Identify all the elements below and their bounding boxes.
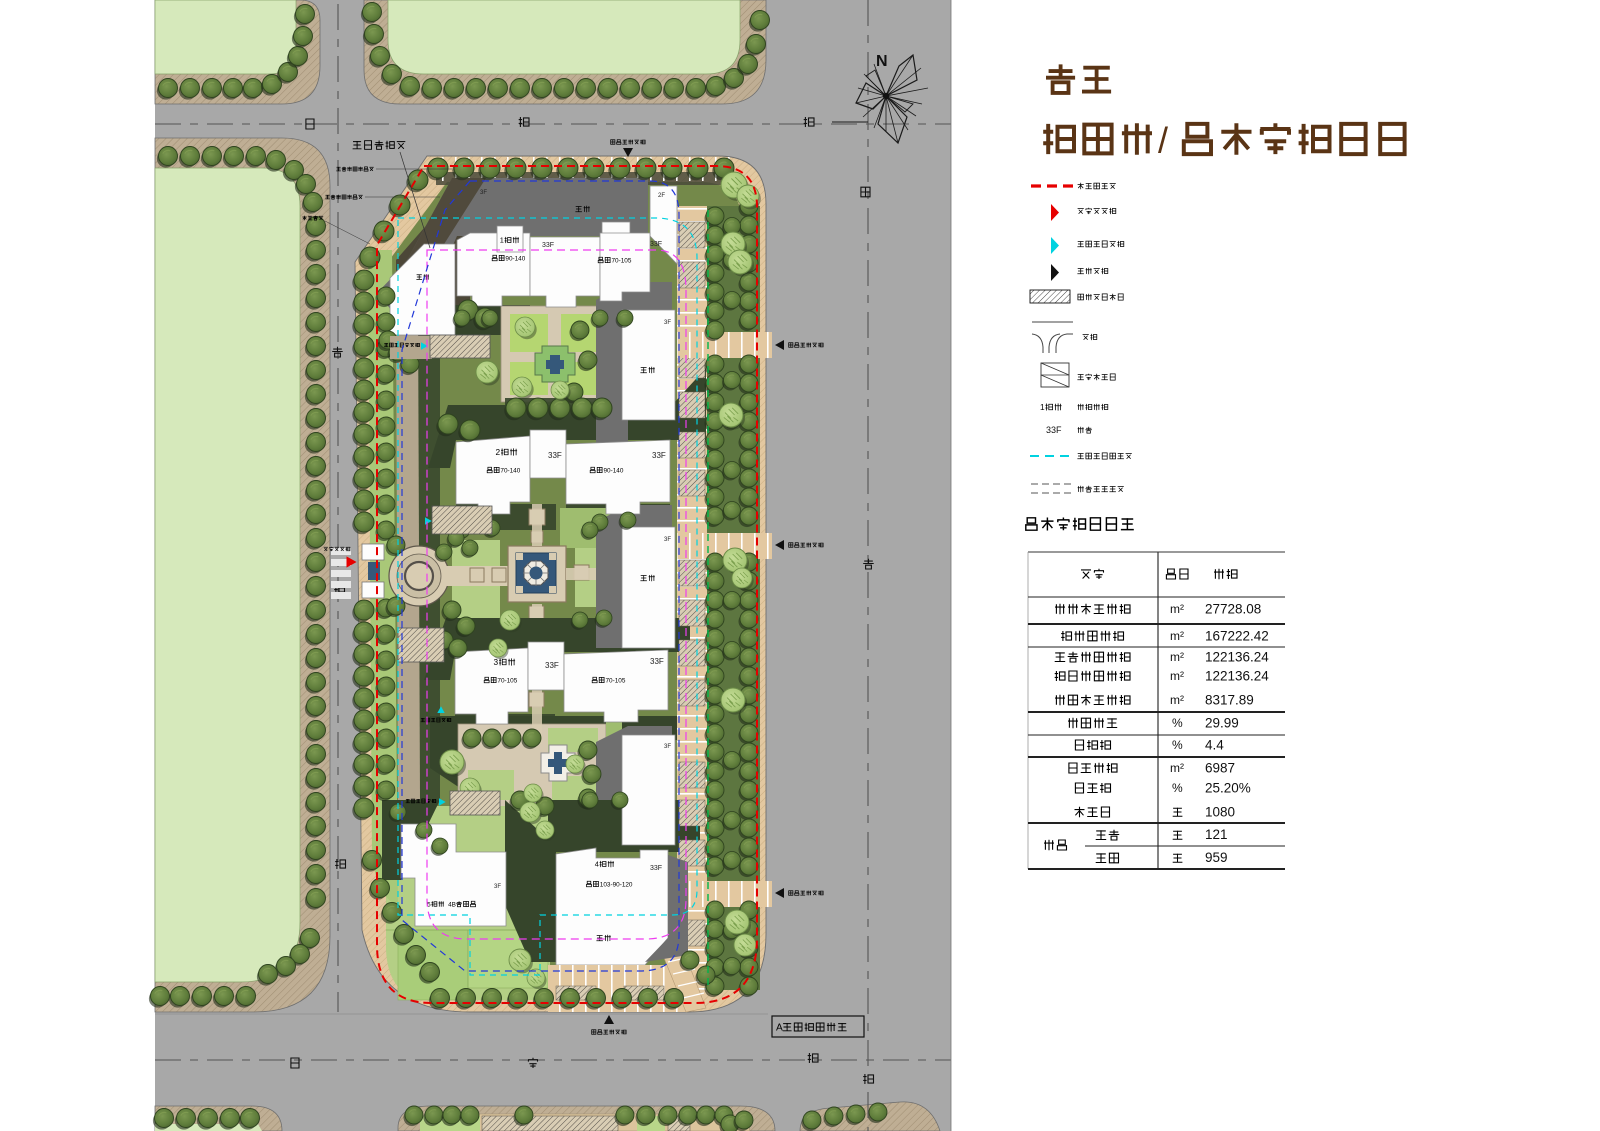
svg-text:m²: m² bbox=[1170, 650, 1184, 664]
svg-text:122136.24: 122136.24 bbox=[1205, 650, 1269, 665]
svg-text:959: 959 bbox=[1205, 850, 1228, 865]
svg-text:m²: m² bbox=[1170, 629, 1184, 643]
svg-text:4.4: 4.4 bbox=[1205, 738, 1224, 753]
svg-text:4: 4 bbox=[595, 860, 599, 869]
svg-text:%: % bbox=[1172, 781, 1183, 795]
svg-text:90-140: 90-140 bbox=[505, 255, 525, 262]
svg-text:3F: 3F bbox=[664, 537, 671, 543]
svg-text:m²: m² bbox=[1170, 669, 1184, 683]
svg-text:4B: 4B bbox=[448, 901, 456, 908]
svg-text:90-140: 90-140 bbox=[604, 467, 624, 474]
svg-text:70-140: 70-140 bbox=[500, 467, 520, 474]
svg-text:3F: 3F bbox=[494, 884, 501, 890]
svg-text:33F: 33F bbox=[650, 657, 664, 666]
svg-text:33F: 33F bbox=[548, 451, 562, 460]
svg-text:70-105: 70-105 bbox=[612, 257, 632, 264]
svg-text:33F: 33F bbox=[650, 241, 662, 248]
svg-text:70-105: 70-105 bbox=[606, 677, 626, 684]
svg-text:27728.08: 27728.08 bbox=[1205, 602, 1261, 617]
svg-text:m²: m² bbox=[1170, 693, 1184, 707]
svg-text:6987: 6987 bbox=[1205, 761, 1235, 776]
svg-text:3F: 3F bbox=[480, 190, 487, 196]
svg-text:167222.42: 167222.42 bbox=[1205, 629, 1269, 644]
svg-text:33F: 33F bbox=[650, 865, 662, 872]
svg-text:33F: 33F bbox=[1046, 425, 1062, 435]
svg-text:1080: 1080 bbox=[1205, 805, 1235, 820]
svg-text:29.99: 29.99 bbox=[1205, 716, 1239, 731]
svg-text:33F: 33F bbox=[652, 451, 666, 460]
svg-text:121: 121 bbox=[1205, 827, 1228, 842]
svg-text:2F: 2F bbox=[658, 193, 665, 199]
svg-text:1: 1 bbox=[1040, 402, 1045, 412]
svg-text:m²: m² bbox=[1170, 602, 1184, 616]
svg-text:8317.89: 8317.89 bbox=[1205, 693, 1254, 708]
svg-text:1: 1 bbox=[500, 236, 504, 245]
svg-text:m²: m² bbox=[1170, 761, 1184, 775]
svg-text:%: % bbox=[1172, 716, 1183, 730]
svg-text:25.20%: 25.20% bbox=[1205, 781, 1251, 796]
svg-text:33F: 33F bbox=[542, 242, 554, 249]
svg-text:A: A bbox=[776, 1023, 783, 1034]
svg-text:N: N bbox=[876, 53, 888, 70]
svg-text:103-90-120: 103-90-120 bbox=[600, 881, 633, 888]
svg-text:2: 2 bbox=[496, 447, 501, 457]
svg-text:70-105: 70-105 bbox=[497, 677, 517, 684]
svg-text:/: / bbox=[1158, 120, 1168, 160]
svg-text:33F: 33F bbox=[545, 661, 559, 670]
svg-text:%: % bbox=[1172, 738, 1183, 752]
svg-text:3F: 3F bbox=[664, 744, 671, 750]
svg-text:3F: 3F bbox=[664, 320, 671, 326]
svg-text:122136.24: 122136.24 bbox=[1205, 669, 1269, 684]
